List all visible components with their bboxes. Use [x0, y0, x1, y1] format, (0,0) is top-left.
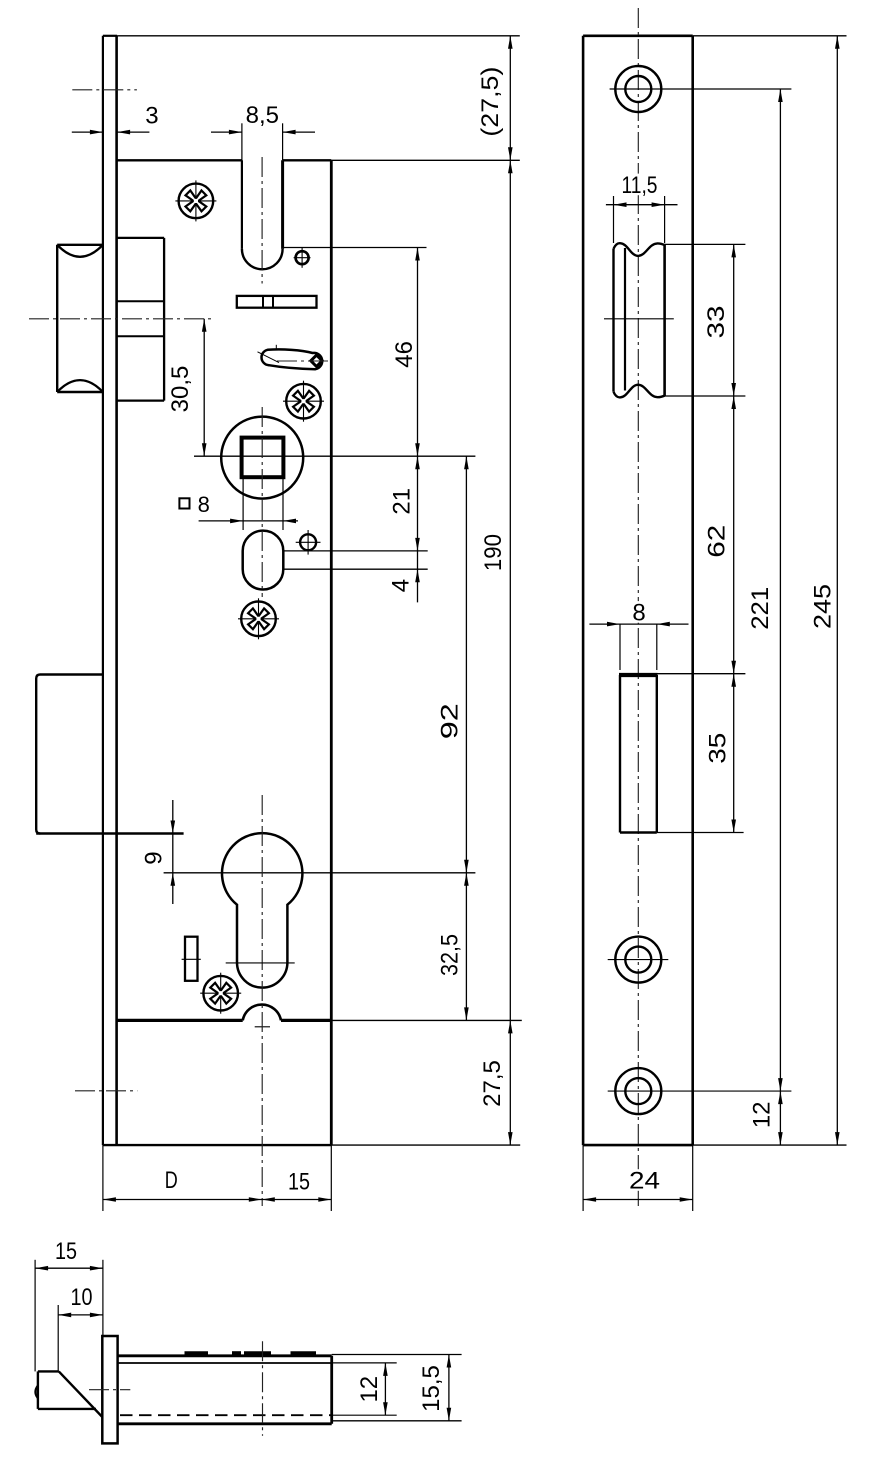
svg-text:190: 190 — [480, 534, 507, 571]
svg-text:221: 221 — [747, 587, 774, 630]
svg-text:4: 4 — [388, 579, 415, 592]
svg-text:8,5: 8,5 — [246, 102, 279, 129]
svg-text:12: 12 — [749, 1101, 776, 1128]
svg-text:21: 21 — [388, 488, 415, 515]
svg-text:12: 12 — [356, 1376, 383, 1403]
svg-text:245: 245 — [809, 584, 836, 629]
svg-text:10: 10 — [71, 1284, 93, 1311]
svg-text:33: 33 — [703, 306, 730, 339]
svg-text:8: 8 — [198, 492, 210, 517]
svg-text:32,5: 32,5 — [437, 934, 464, 976]
svg-text:46: 46 — [391, 341, 418, 368]
svg-text:(27,5): (27,5) — [477, 67, 504, 137]
svg-text:30,5: 30,5 — [167, 366, 194, 413]
svg-text:15: 15 — [55, 1238, 77, 1265]
svg-text:24: 24 — [629, 1168, 660, 1195]
svg-text:15,5: 15,5 — [418, 1365, 445, 1412]
svg-text:8: 8 — [632, 600, 645, 627]
svg-text:3: 3 — [145, 102, 158, 129]
svg-text:D: D — [165, 1167, 178, 1194]
svg-text:92: 92 — [437, 703, 464, 739]
svg-text:11,5: 11,5 — [622, 172, 658, 199]
svg-text:9: 9 — [141, 851, 168, 864]
svg-text:35: 35 — [705, 733, 732, 764]
svg-text:15: 15 — [288, 1168, 310, 1195]
svg-text:27,5: 27,5 — [479, 1060, 506, 1107]
svg-text:62: 62 — [704, 525, 731, 558]
